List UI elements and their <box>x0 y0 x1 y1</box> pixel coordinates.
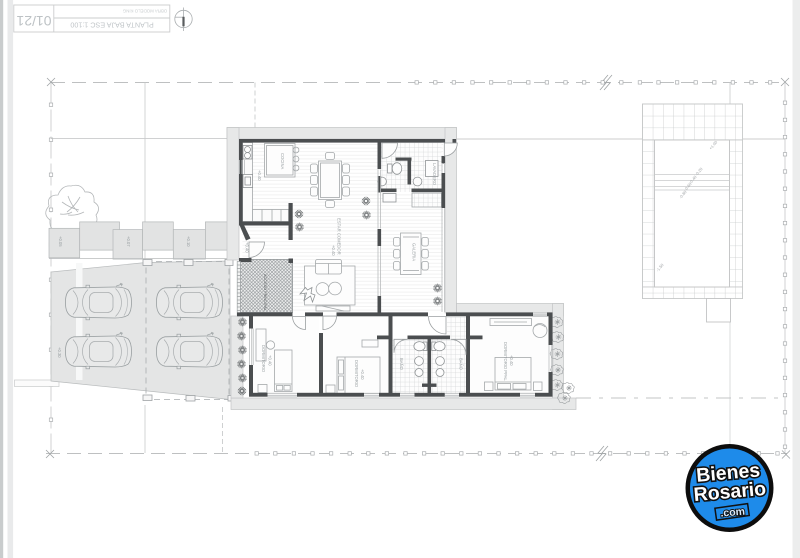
svg-text:+0.40: +0.40 <box>331 245 336 256</box>
svg-text:+0.05: +0.05 <box>58 236 63 247</box>
svg-text:+0.40: +0.40 <box>268 355 273 366</box>
svg-text:PLANTA BAJA ESC 1:100: PLANTA BAJA ESC 1:100 <box>70 20 153 29</box>
svg-text:+0.30: +0.30 <box>57 347 62 358</box>
svg-text:.com: .com <box>720 506 745 520</box>
svg-text:BAÑO: BAÑO <box>459 358 464 371</box>
svg-text:GALERIA: GALERIA <box>412 243 417 261</box>
svg-text:DORMITORIO: DORMITORIO <box>261 345 266 373</box>
svg-text:+0.40: +0.40 <box>509 355 514 366</box>
svg-text:COCINA: COCINA <box>280 153 285 169</box>
svg-text:+0.40: +0.40 <box>257 170 262 181</box>
svg-text:BAÑO: BAÑO <box>399 358 404 371</box>
svg-text:DORMITORIO PPAL: DORMITORIO PPAL <box>503 342 508 381</box>
svg-text:+0.10: +0.10 <box>186 236 191 247</box>
svg-text:01/21: 01/21 <box>16 13 51 29</box>
svg-text:ACCESO PRINCIPAL: ACCESO PRINCIPAL <box>263 274 267 311</box>
svg-text:LAVADERO: LAVADERO <box>432 163 437 186</box>
svg-text:+0.40: +0.40 <box>360 369 365 380</box>
svg-text:ESTAR COMEDOR: ESTAR COMEDOR <box>337 218 342 255</box>
svg-text:+0.07: +0.07 <box>126 236 131 247</box>
svg-text:OBRA MODELO KING: OBRA MODELO KING <box>122 9 167 14</box>
svg-text:DORMITORIO: DORMITORIO <box>354 360 359 388</box>
